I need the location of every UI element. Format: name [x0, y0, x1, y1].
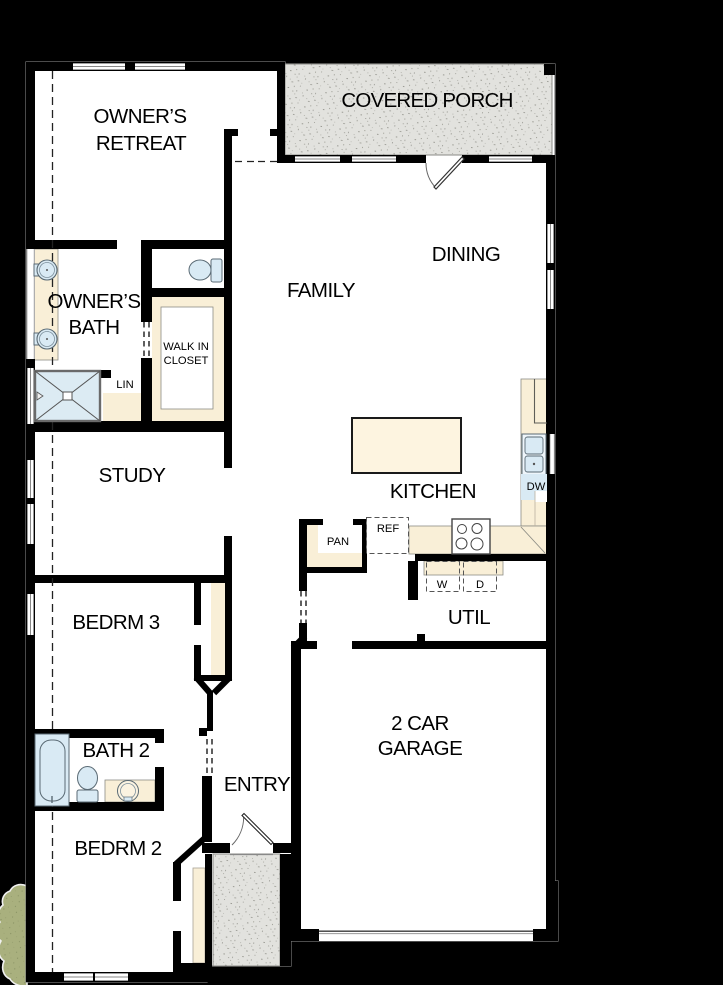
svg-text:WALK IN: WALK IN	[163, 341, 209, 353]
svg-text:UTIL: UTIL	[448, 606, 490, 629]
svg-text:W: W	[437, 579, 448, 591]
svg-text:CLOSET: CLOSET	[164, 355, 209, 367]
svg-text:KITCHEN: KITCHEN	[390, 480, 476, 503]
svg-text:BATH: BATH	[69, 316, 120, 339]
svg-text:GARAGE: GARAGE	[378, 737, 462, 760]
svg-text:DW: DW	[527, 481, 546, 493]
svg-text:RETREAT: RETREAT	[96, 132, 187, 155]
svg-text:BEDRM 2: BEDRM 2	[74, 837, 161, 860]
svg-text:BATH 2: BATH 2	[83, 739, 150, 762]
svg-text:STUDY: STUDY	[99, 464, 167, 487]
svg-text:LIN: LIN	[116, 379, 133, 391]
svg-text:DINING: DINING	[432, 243, 500, 266]
svg-text:2 CAR: 2 CAR	[391, 712, 449, 735]
svg-text:BEDRM 3: BEDRM 3	[72, 611, 159, 634]
svg-text:REF: REF	[377, 523, 400, 535]
svg-text:COVERED PORCH: COVERED PORCH	[341, 89, 512, 112]
svg-text:OWNER’S: OWNER’S	[48, 290, 141, 313]
svg-text:PAN: PAN	[327, 536, 349, 548]
svg-text:OWNER’S: OWNER’S	[94, 105, 187, 128]
svg-text:ENTRY: ENTRY	[224, 773, 291, 796]
svg-text:D: D	[476, 579, 484, 591]
svg-text:FAMILY: FAMILY	[287, 279, 356, 302]
